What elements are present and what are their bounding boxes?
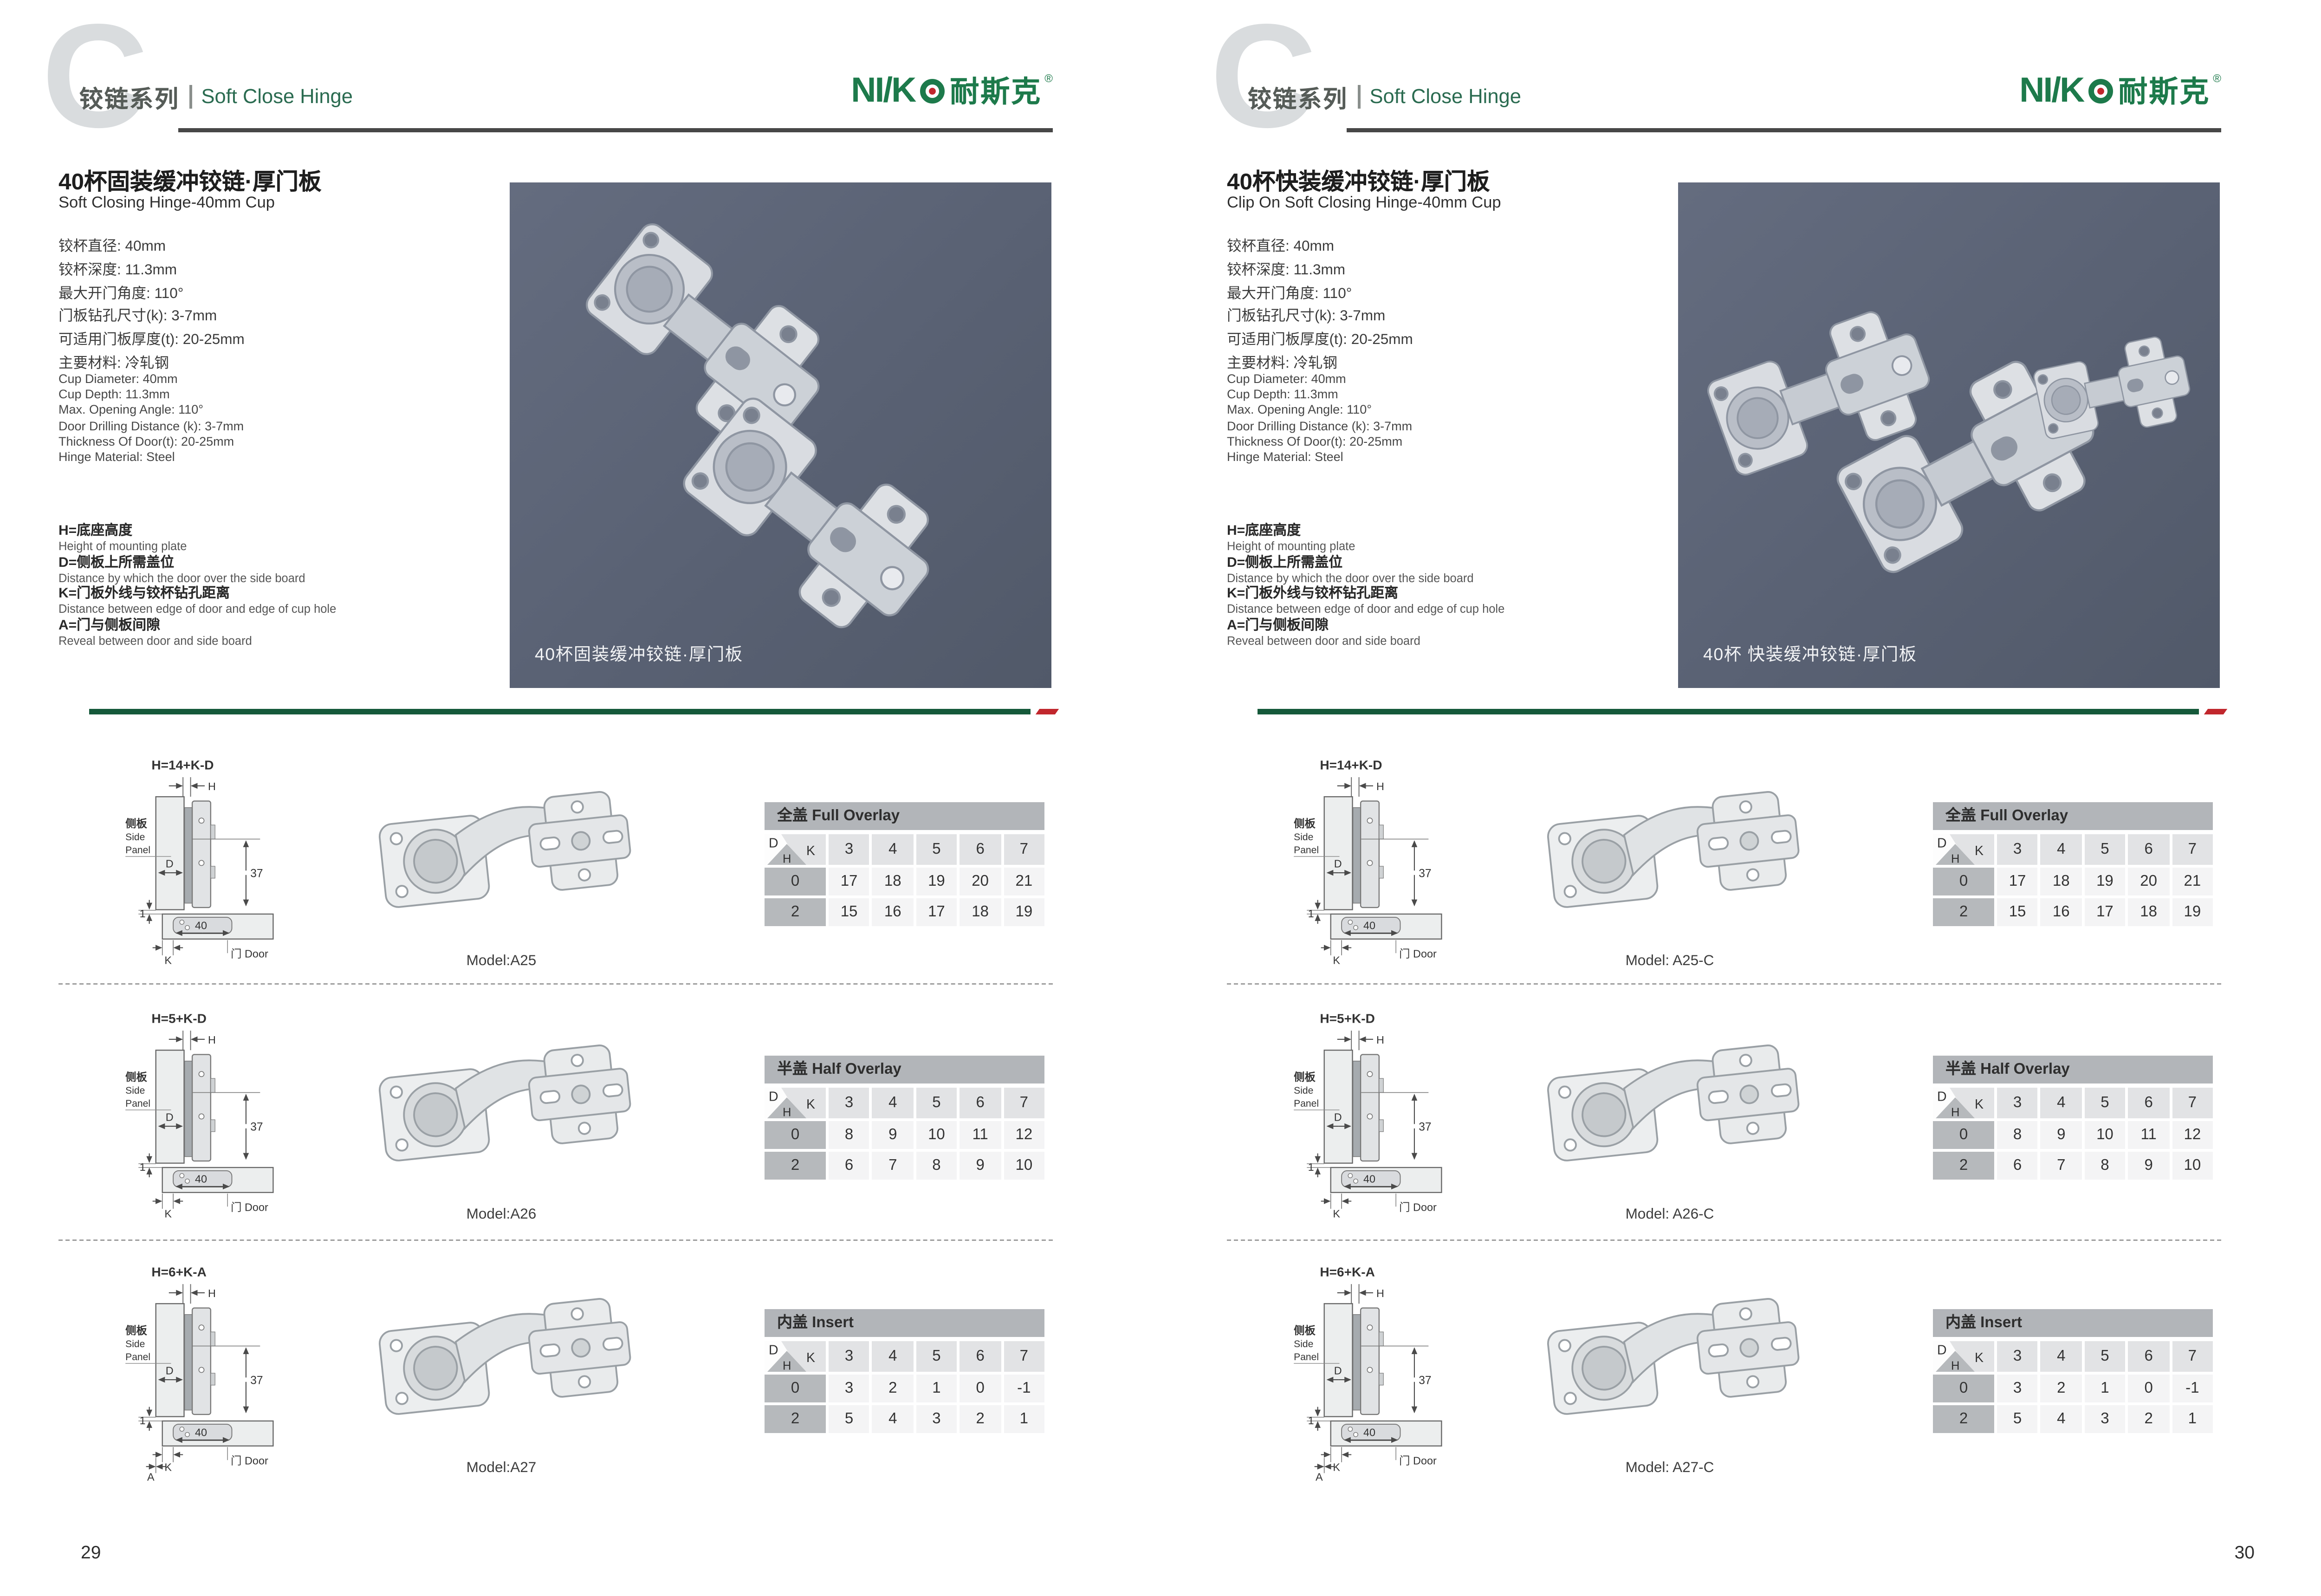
svg-text:H: H [1376, 780, 1384, 792]
svg-text:Side: Side [125, 1085, 145, 1096]
table-corner-cell: DKH [1933, 1341, 1994, 1371]
svg-text:K: K [164, 1461, 172, 1473]
svg-text:D: D [1937, 1342, 1947, 1357]
overlay-value-cell: 10 [2084, 1121, 2125, 1148]
model-label: Model: A26-C [1517, 1206, 1823, 1223]
specs-cn-list: 铰杯直径: 40mm铰杯深度: 11.3mm最大开门角度: 110°门板钻孔尺寸… [1227, 235, 1413, 376]
logo-latin-text: NI/K [2019, 71, 2083, 111]
overlay-value-cell: 1 [2172, 1405, 2213, 1433]
logo-target-o-icon [919, 78, 946, 104]
photo-caption: 40杯固装缓冲铰链·厚门板 [535, 639, 743, 666]
product-photo: 40杯固装缓冲铰链·厚门板 [510, 182, 1051, 688]
overlay-value-cell: 0 [960, 1374, 1001, 1402]
svg-text:K: K [806, 1350, 815, 1365]
svg-text:1: 1 [140, 1414, 146, 1427]
hinge-illustration [1530, 777, 1812, 941]
half-overlay-table: 半盖 Half OverlayDKH345670891011122678910 [1933, 1056, 2213, 1179]
k-header-cell: 3 [1997, 1341, 2038, 1371]
hinge-illustration [362, 1031, 643, 1195]
svg-text:H: H [208, 1034, 216, 1046]
svg-text:40: 40 [1363, 1173, 1375, 1185]
spec-line-en: Cup Depth: 11.3mm [1227, 388, 1412, 403]
spec-line-en: Door Drilling Distance (k): 3-7mm [1227, 419, 1412, 435]
half-overlay-section: H=5+K-DH37D140门 DoorK侧板SidePanel Model:A… [0, 1017, 1167, 1239]
hinge-illustration [362, 1284, 643, 1448]
svg-text:37: 37 [1419, 1374, 1431, 1387]
table-corner-cell: DKH [1933, 834, 1994, 864]
section-divider-bar [1258, 709, 2232, 714]
legend-cn: A=门与侧板间隙 [58, 618, 490, 635]
legend-en: Distance between edge of door and edge o… [1227, 603, 1659, 616]
overlay-value-cell: 9 [2041, 1121, 2081, 1148]
overlay-value-cell: 8 [829, 1121, 869, 1148]
k-header-cell: 6 [960, 1087, 1001, 1118]
svg-text:D: D [166, 857, 174, 869]
h-row-label: 0 [765, 867, 826, 895]
overlay-value-cell: 2 [872, 1374, 913, 1402]
h-row-label: 0 [1933, 1374, 1994, 1402]
series-header: 铰链系列 Soft Close Hinge [79, 79, 353, 114]
header-rule [178, 128, 1053, 132]
h-row-label: 0 [765, 1374, 826, 1402]
svg-text:门 Door: 门 Door [231, 1455, 268, 1467]
k-header-cell: 5 [2084, 1341, 2125, 1371]
k-header-cell: 7 [1004, 1341, 1044, 1371]
h-row-label: 2 [1933, 898, 1994, 926]
product-title-cn: 40杯固装缓冲铰链·厚门板 [58, 163, 322, 196]
series-header: 铰链系列 Soft Close Hinge [1248, 79, 1521, 114]
overlay-value-cell: 8 [916, 1151, 957, 1179]
overlay-value-cell: 4 [2041, 1405, 2081, 1433]
insert-section: H=6+K-AH37D140门 DoorKA侧板SidePanel Model:… [0, 1270, 1167, 1493]
svg-text:H: H [208, 780, 216, 792]
svg-text:H: H [783, 1359, 791, 1371]
photo-caption: 40杯 快装缓冲铰链·厚门板 [1703, 639, 1917, 666]
overlay-value-cell: 10 [916, 1121, 957, 1148]
overlay-value-cell: 18 [2041, 867, 2081, 895]
k-header-cell: 6 [2128, 834, 2169, 864]
svg-text:D: D [769, 835, 778, 850]
logo-cn-text: 耐斯克 [950, 70, 1042, 111]
series-c-glyph: C [1210, 3, 1317, 150]
k-header-cell: 4 [872, 1087, 913, 1118]
overlay-value-cell: 9 [872, 1121, 913, 1148]
overlay-value-cell: -1 [1004, 1374, 1044, 1402]
svg-text:K: K [1975, 843, 1984, 858]
spec-line-cn: 最大开门角度: 110° [1227, 282, 1413, 305]
table-grid: DKH3456703210-1254321 [765, 1341, 1044, 1433]
k-header-cell: 4 [2041, 1087, 2081, 1118]
svg-text:侧板: 侧板 [1294, 1070, 1316, 1083]
legend-en: Distance between edge of door and edge o… [58, 603, 490, 616]
k-header-cell: 3 [1997, 834, 2038, 864]
overlay-value-cell: 1 [916, 1374, 957, 1402]
catalog-page-right: C 铰链系列 Soft Close Hinge NI/K 耐斯克 ® 40杯快装… [1168, 0, 2321, 1596]
catalog-spread: C 铰链系列 Soft Close Hinge NI/K 耐斯克 ® 40杯固装… [0, 0, 2321, 1596]
svg-text:H: H [783, 1105, 791, 1118]
insert-table: 内盖 InsertDKH3456703210-1254321 [1933, 1309, 2213, 1433]
k-header-cell: 6 [960, 1341, 1001, 1371]
legend-en: Reveal between door and side board [58, 635, 490, 648]
legend-en: Distance by which the door over the side… [58, 572, 490, 585]
svg-text:Panel: Panel [125, 1098, 150, 1109]
spec-line-en: Max. Opening Angle: 110° [1227, 403, 1412, 419]
overlay-value-cell: 17 [2084, 898, 2125, 926]
dashed-separator [58, 983, 1053, 985]
svg-text:D: D [1937, 835, 1947, 850]
k-header-cell: 4 [2041, 1341, 2081, 1371]
dashed-separator [1227, 983, 2221, 985]
nisko-logo: NI/K 耐斯克 ® [819, 70, 1053, 111]
table-corner-cell: DKH [765, 1341, 826, 1371]
overlay-value-cell: 0 [2128, 1374, 2169, 1402]
overlay-value-cell: 7 [872, 1151, 913, 1179]
page-number: 30 [2235, 1542, 2255, 1563]
svg-text:37: 37 [1419, 1121, 1431, 1133]
legend-cn: D=侧板上所需盖位 [58, 555, 490, 572]
overlay-value-cell: 9 [2128, 1151, 2169, 1179]
svg-text:D: D [1334, 857, 1342, 869]
svg-text:H: H [1376, 1034, 1384, 1046]
logo-cn-text: 耐斯克 [2118, 70, 2210, 111]
h-row-label: 2 [765, 1151, 826, 1179]
h-row-label: 2 [765, 1405, 826, 1433]
mounting-diagram-half-overlay: H=5+K-DH37D140门 DoorK侧板SidePanel [1274, 1011, 1472, 1228]
svg-text:侧板: 侧板 [125, 1324, 147, 1336]
legend-en: Distance by which the door over the side… [1227, 572, 1659, 585]
half-overlay-section: H=5+K-DH37D140门 DoorK侧板SidePanel Model: … [1168, 1017, 2321, 1239]
svg-text:H=14+K-D: H=14+K-D [151, 758, 214, 772]
full-overlay-section: H=14+K-DH37D140门 DoorK侧板SidePanel Model:… [0, 763, 1167, 986]
svg-text:K: K [1975, 1350, 1984, 1365]
model-label: Model:A26 [348, 1206, 655, 1223]
svg-text:Panel: Panel [125, 845, 150, 856]
specs-en-list: Cup Diameter: 40mmCup Depth: 11.3mmMax. … [58, 372, 244, 466]
svg-text:1: 1 [140, 1161, 146, 1173]
h-row-label: 0 [1933, 1121, 1994, 1148]
overlay-value-cell: 11 [2128, 1121, 2169, 1148]
spec-line-cn: 铰杯直径: 40mm [1227, 235, 1413, 259]
svg-text:37: 37 [250, 1374, 263, 1387]
k-header-cell: 3 [1997, 1087, 2038, 1118]
overlay-value-cell: 8 [2084, 1151, 2125, 1179]
h-row-label: 2 [765, 898, 826, 926]
overlay-value-cell: 12 [1004, 1121, 1044, 1148]
section-divider-bar [89, 709, 1064, 714]
half-overlay-table: 半盖 Half OverlayDKH345670891011122678910 [765, 1056, 1044, 1179]
svg-text:A: A [1316, 1471, 1323, 1482]
legend-item: K=门板外线与铰杯钻孔距离Distance between edge of do… [58, 586, 490, 616]
series-divider [189, 85, 192, 109]
svg-text:H: H [1951, 1359, 1959, 1371]
h-row-label: 0 [765, 1121, 826, 1148]
h-row-label: 2 [1933, 1405, 1994, 1433]
product-photo-art [510, 182, 1051, 688]
overlay-value-cell: 5 [829, 1405, 869, 1433]
divider-green-segment [89, 709, 1031, 714]
svg-text:H=14+K-D: H=14+K-D [1320, 758, 1382, 772]
table-corner-cell: DKH [1933, 1087, 1994, 1118]
overlay-value-cell: 2 [960, 1405, 1001, 1433]
svg-text:K: K [1975, 1096, 1984, 1111]
svg-text:37: 37 [1419, 867, 1431, 880]
svg-text:37: 37 [250, 867, 263, 880]
spec-line-cn: 门板钻孔尺寸(k): 3-7mm [1227, 305, 1413, 329]
k-header-cell: 3 [829, 834, 869, 864]
h-row-label: 2 [1933, 1151, 1994, 1179]
svg-text:Side: Side [125, 832, 145, 843]
svg-text:1: 1 [140, 908, 146, 920]
spec-line-en: Thickness Of Door(t): 20-25mm [58, 434, 244, 450]
mounting-diagram-full-overlay: H=14+K-DH37D140门 DoorK侧板SidePanel [106, 758, 304, 975]
legend-cn: D=侧板上所需盖位 [1227, 555, 1659, 572]
overlay-value-cell: 16 [2041, 898, 2081, 926]
svg-text:K: K [164, 1208, 172, 1220]
overlay-value-cell: -1 [2172, 1374, 2213, 1402]
overlay-value-cell: 3 [916, 1405, 957, 1433]
dimension-legend: H=底座高度Height of mounting plateD=侧板上所需盖位D… [1227, 524, 1659, 649]
series-title-en: Soft Close Hinge [201, 86, 353, 108]
svg-text:Side: Side [1294, 1085, 1313, 1096]
logo-target-o-icon [2088, 78, 2114, 104]
table-title: 半盖 Half Overlay [765, 1056, 1044, 1083]
model-label: Model:A27 [348, 1460, 655, 1476]
catalog-sheet: C 铰链系列 Soft Close Hinge NI/K 耐斯克 ® 40杯固装… [0, 0, 2321, 1596]
k-header-cell: 6 [2128, 1341, 2169, 1371]
k-header-cell: 4 [872, 834, 913, 864]
overlay-value-cell: 1 [1004, 1405, 1044, 1433]
svg-text:1: 1 [1308, 1414, 1314, 1427]
insert-table: 内盖 InsertDKH3456703210-1254321 [765, 1309, 1044, 1433]
overlay-value-cell: 12 [2172, 1121, 2213, 1148]
k-header-cell: 4 [872, 1341, 913, 1371]
divider-red-segment [1036, 709, 1059, 714]
k-header-cell: 7 [1004, 834, 1044, 864]
hinge-illustration [1530, 1031, 1812, 1195]
svg-text:侧板: 侧板 [125, 817, 147, 830]
overlay-value-cell: 19 [2084, 867, 2125, 895]
svg-text:D: D [769, 1089, 778, 1103]
svg-text:门 Door: 门 Door [1399, 948, 1437, 960]
spec-line-cn: 最大开门角度: 110° [58, 282, 245, 305]
table-grid: DKH345670891011122678910 [1933, 1087, 2213, 1179]
divider-green-segment [1258, 709, 2199, 714]
series-c-glyph: C [42, 3, 149, 150]
svg-text:D: D [1334, 1364, 1342, 1376]
spec-line-en: Cup Diameter: 40mm [58, 372, 244, 388]
overlay-value-cell: 4 [872, 1405, 913, 1433]
svg-text:H=6+K-A: H=6+K-A [1320, 1265, 1375, 1279]
hinge-illustration [362, 777, 643, 941]
table-corner-cell: DKH [765, 834, 826, 864]
product-title-cn: 40杯快装缓冲铰链·厚门板 [1227, 163, 1490, 196]
table-grid: DKH345670171819202121516171819 [1933, 834, 2213, 926]
overlay-value-cell: 17 [829, 867, 869, 895]
overlay-value-cell: 8 [1997, 1121, 2038, 1148]
table-grid: DKH345670171819202121516171819 [765, 834, 1044, 926]
spec-line-cn: 铰杯直径: 40mm [58, 235, 245, 259]
overlay-value-cell: 3 [1997, 1374, 2038, 1402]
legend-cn: H=底座高度 [1227, 524, 1659, 540]
svg-text:K: K [1333, 1208, 1340, 1220]
nisko-logo: NI/K 耐斯克 ® [1987, 70, 2221, 111]
svg-text:Panel: Panel [1294, 1352, 1319, 1362]
spec-line-cn: 铰杯深度: 11.3mm [1227, 259, 1413, 282]
logo-registered-mark: ® [1044, 72, 1053, 85]
k-header-cell: 5 [2084, 1087, 2125, 1118]
spec-line-en: Cup Diameter: 40mm [1227, 372, 1412, 388]
svg-text:H: H [1376, 1287, 1384, 1299]
overlay-value-cell: 19 [1004, 898, 1044, 926]
overlay-value-cell: 19 [916, 867, 957, 895]
overlay-value-cell: 15 [1997, 898, 2038, 926]
legend-cn: A=门与侧板间隙 [1227, 618, 1659, 635]
model-label: Model: A27-C [1517, 1460, 1823, 1476]
overlay-value-cell: 15 [829, 898, 869, 926]
model-label: Model: A25-C [1517, 953, 1823, 969]
table-corner-cell: DKH [765, 1087, 826, 1118]
svg-text:D: D [769, 1342, 778, 1357]
logo-latin-text: NI/K [851, 71, 915, 111]
spec-line-cn: 可适用门板厚度(t): 20-25mm [1227, 329, 1413, 352]
spec-line-cn: 铰杯深度: 11.3mm [58, 259, 245, 282]
h-row-label: 0 [1933, 867, 1994, 895]
overlay-value-cell: 5 [1997, 1405, 2038, 1433]
svg-text:H: H [783, 852, 791, 864]
svg-text:Side: Side [1294, 1339, 1313, 1349]
overlay-value-cell: 6 [829, 1151, 869, 1179]
svg-text:门 Door: 门 Door [231, 1201, 268, 1213]
k-header-cell: 5 [2084, 834, 2125, 864]
svg-text:D: D [1937, 1089, 1947, 1103]
spec-line-en: Max. Opening Angle: 110° [58, 403, 244, 419]
overlay-value-cell: 7 [2041, 1151, 2081, 1179]
specs-cn-list: 铰杯直径: 40mm铰杯深度: 11.3mm最大开门角度: 110°门板钻孔尺寸… [58, 235, 245, 376]
k-header-cell: 5 [916, 834, 957, 864]
overlay-value-cell: 10 [1004, 1151, 1044, 1179]
page-number: 29 [81, 1542, 101, 1563]
svg-text:D: D [166, 1111, 174, 1123]
catalog-page-left: C 铰链系列 Soft Close Hinge NI/K 耐斯克 ® 40杯固装… [0, 0, 1167, 1596]
overlay-value-cell: 6 [1997, 1151, 2038, 1179]
table-title: 全盖 Full Overlay [1933, 802, 2213, 830]
model-label: Model:A25 [348, 953, 655, 969]
full-overlay-table: 全盖 Full OverlayDKH3456701718192021215161… [765, 802, 1044, 926]
overlay-value-cell: 9 [960, 1151, 1001, 1179]
legend-item: D=侧板上所需盖位Distance by which the door over… [58, 555, 490, 585]
overlay-value-cell: 2 [2128, 1405, 2169, 1433]
overlay-value-cell: 21 [1004, 867, 1044, 895]
svg-text:Panel: Panel [1294, 845, 1319, 856]
overlay-value-cell: 20 [960, 867, 1001, 895]
overlay-value-cell: 10 [2172, 1151, 2213, 1179]
spec-line-en: Hinge Material: Steel [1227, 450, 1412, 466]
svg-text:Panel: Panel [125, 1352, 150, 1362]
legend-en: Height of mounting plate [1227, 540, 1659, 554]
svg-text:D: D [1334, 1111, 1342, 1123]
table-grid: DKH3456703210-1254321 [1933, 1341, 2213, 1433]
svg-text:37: 37 [250, 1121, 263, 1133]
spec-line-en: Hinge Material: Steel [58, 450, 244, 466]
spec-line-en: Thickness Of Door(t): 20-25mm [1227, 434, 1412, 450]
legend-cn: K=门板外线与铰杯钻孔距离 [1227, 586, 1659, 603]
overlay-value-cell: 16 [872, 898, 913, 926]
table-title: 全盖 Full Overlay [765, 802, 1044, 830]
overlay-value-cell: 20 [2128, 867, 2169, 895]
svg-text:H: H [1951, 1105, 1959, 1118]
product-title-en: Soft Closing Hinge-40mm Cup [58, 195, 275, 212]
spec-line-cn: 可适用门板厚度(t): 20-25mm [58, 329, 245, 352]
overlay-value-cell: 11 [960, 1121, 1001, 1148]
spec-line-en: Door Drilling Distance (k): 3-7mm [58, 419, 244, 435]
mounting-diagram-insert: H=6+K-AH37D140门 DoorKA侧板SidePanel [106, 1265, 304, 1482]
svg-text:K: K [1333, 954, 1340, 967]
k-header-cell: 3 [829, 1087, 869, 1118]
svg-text:40: 40 [195, 1427, 207, 1439]
svg-text:40: 40 [1363, 1427, 1375, 1439]
overlay-value-cell: 17 [916, 898, 957, 926]
k-header-cell: 5 [916, 1087, 957, 1118]
specs-en-list: Cup Diameter: 40mmCup Depth: 11.3mmMax. … [1227, 372, 1412, 466]
hinge-illustration [1530, 1284, 1812, 1448]
overlay-value-cell: 3 [829, 1374, 869, 1402]
svg-text:H: H [1951, 852, 1959, 864]
legend-en: Reveal between door and side board [1227, 635, 1659, 648]
overlay-value-cell: 19 [2172, 898, 2213, 926]
svg-text:K: K [164, 954, 172, 967]
product-photo: 40杯 快装缓冲铰链·厚门板 [1678, 182, 2220, 688]
svg-text:K: K [806, 843, 815, 858]
table-title: 内盖 Insert [1933, 1309, 2213, 1337]
overlay-value-cell: 18 [2128, 898, 2169, 926]
mounting-diagram-half-overlay: H=5+K-DH37D140门 DoorK侧板SidePanel [106, 1011, 304, 1228]
svg-text:Side: Side [125, 1339, 145, 1349]
svg-text:H: H [208, 1287, 216, 1299]
logo-registered-mark: ® [2213, 72, 2221, 85]
svg-text:门 Door: 门 Door [1399, 1455, 1437, 1467]
k-header-cell: 6 [960, 834, 1001, 864]
dashed-separator [58, 1239, 1053, 1241]
product-photo-art [1678, 182, 2220, 688]
header-rule [1347, 128, 2221, 132]
svg-text:K: K [806, 1096, 815, 1111]
k-header-cell: 7 [1004, 1087, 1044, 1118]
legend-item: D=侧板上所需盖位Distance by which the door over… [1227, 555, 1659, 585]
table-title: 内盖 Insert [765, 1309, 1044, 1337]
series-divider [1358, 85, 1360, 109]
product-title-en: Clip On Soft Closing Hinge-40mm Cup [1227, 195, 1501, 212]
overlay-value-cell: 18 [960, 898, 1001, 926]
svg-text:40: 40 [1363, 920, 1375, 932]
legend-en: Height of mounting plate [58, 540, 490, 554]
overlay-value-cell: 1 [2084, 1374, 2125, 1402]
svg-text:40: 40 [195, 920, 207, 932]
k-header-cell: 7 [2172, 1341, 2213, 1371]
k-header-cell: 5 [916, 1341, 957, 1371]
spec-line-en: Cup Depth: 11.3mm [58, 388, 244, 403]
full-overlay-table: 全盖 Full OverlayDKH3456701718192021215161… [1933, 802, 2213, 926]
insert-section: H=6+K-AH37D140门 DoorKA侧板SidePanel Model:… [1168, 1270, 2321, 1493]
svg-text:Side: Side [1294, 832, 1313, 843]
svg-text:D: D [166, 1364, 174, 1376]
legend-item: K=门板外线与铰杯钻孔距离Distance between edge of do… [1227, 586, 1659, 616]
overlay-value-cell: 18 [872, 867, 913, 895]
svg-text:Panel: Panel [1294, 1098, 1319, 1109]
full-overlay-section: H=14+K-DH37D140门 DoorK侧板SidePanel Model:… [1168, 763, 2321, 986]
series-title-cn: 铰链系列 [79, 79, 180, 114]
svg-text:门 Door: 门 Door [231, 948, 268, 960]
k-header-cell: 6 [2128, 1087, 2169, 1118]
